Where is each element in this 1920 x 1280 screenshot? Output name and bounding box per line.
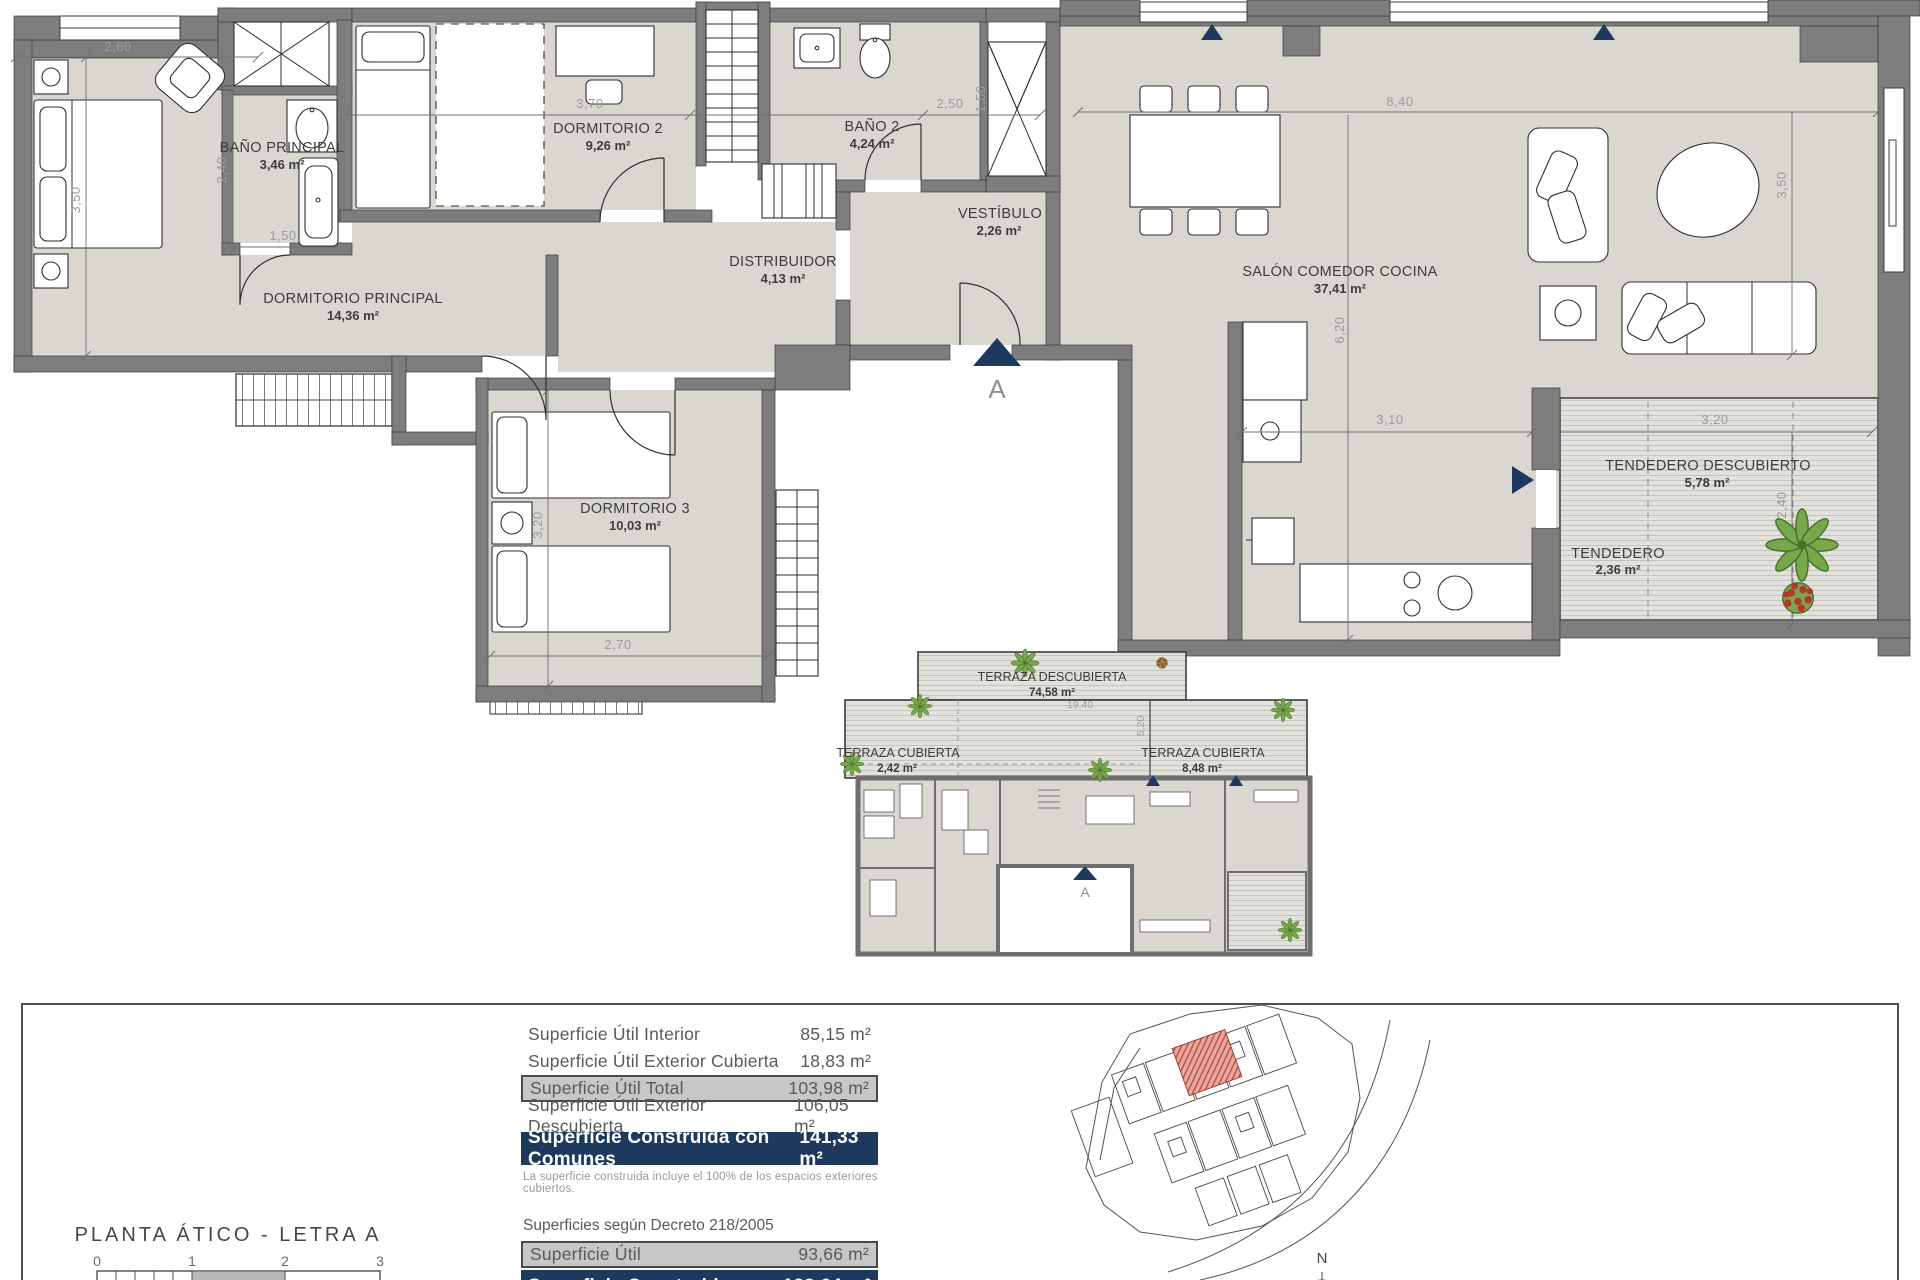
room-area: 10,03 m² [609,518,662,533]
plant-icon [1783,583,1814,614]
dim-label: 3,20 [1701,412,1728,427]
nightstand-icon [492,502,532,544]
dim-label: 3,20 [530,511,545,538]
north-compass-icon: N [1302,1250,1342,1280]
wardrobe-icon [234,22,329,86]
dining-table-icon [1130,86,1280,235]
single-bed-icon [356,26,430,208]
table-row-highlight-navy: Superficie Construida con Comunes 141,33… [521,1132,878,1165]
nightstand-icon [34,60,68,94]
room-area: 8,48 m² [1182,763,1222,775]
row-value: 85,15 m² [800,1024,871,1045]
site-map: N [1063,1005,1430,1280]
table-note: La superficie construida incluye el 100%… [521,1171,878,1195]
room-label: TERRAZA CUBIERTA [836,746,960,760]
room-label: TENDEDERO DESCUBIERTO [1605,458,1811,474]
plant-icon [1271,698,1295,722]
nightstand-icon [34,254,68,288]
plant-icon [1088,758,1112,782]
row-value: 133,64 m² [783,1276,871,1280]
single-bed-icon [492,412,670,498]
dim-label: 2,40 [1774,491,1789,518]
room-label: BAÑO PRINCIPAL [220,139,345,156]
tendedero-area [1560,398,1878,620]
room-label: DORMITORIO 2 [553,121,663,137]
room-area: 2,26 m² [977,223,1022,238]
table-row: Superficie Útil Exterior Descubierta 106… [521,1102,878,1129]
row-label: Superficie Construida [528,1276,730,1280]
dim-label: 3,10 [1376,412,1403,427]
room-label: BAÑO 2 [845,118,900,135]
scale-tick-label: 0 [93,1253,101,1269]
scale-bar: 0 1 2 3 [93,1253,384,1280]
dim-label: 1,50 [973,85,988,112]
plan-title: PLANTA ÁTICO - LETRA A [75,1223,382,1246]
decree-table-title: Superficies según Decreto 218/2005 [521,1217,878,1235]
stairs-icon [776,490,818,676]
dim-label: 6,20 [1332,316,1347,343]
scale-tick-label: 3 [376,1253,384,1269]
dim-label: 2,70 [604,637,631,652]
single-bed-icon [492,546,670,632]
compass-label: N [1317,1250,1328,1267]
row-label: Superficie Construida con Comunes [528,1127,799,1171]
row-value: 141,33 m² [799,1127,871,1171]
room-area: 4,24 m² [850,136,895,151]
dim-label: 5,20 [1135,716,1147,737]
double-bed-icon [34,100,162,248]
room-area: 2,36 m² [1596,562,1641,577]
table-row: Superficie Útil Exterior Cubierta 18,83 … [521,1048,878,1075]
room-label: DORMITORIO 3 [580,501,690,517]
row-label: Superficie Útil [530,1244,641,1265]
section-marker-letter: A [988,374,1006,404]
dim-label: 3,70 [576,96,603,111]
room-area: 74,58 m² [1029,687,1075,699]
sink-icon [794,28,840,68]
room-label: SALÓN COMEDOR COCINA [1242,263,1437,280]
area-tables: Superficie Útil Interior 85,15 m² Superf… [521,1021,878,1280]
plant-icon [1766,509,1838,581]
room-area: 4,13 m² [761,271,806,286]
row-label: Superficie Útil Interior [528,1024,700,1045]
highlighted-unit [1172,1030,1242,1096]
room-area: 3,46 m² [260,157,305,172]
room-area: 5,78 m² [1685,475,1730,490]
dim-label: 19,40 [1067,699,1093,711]
row-label: Superficie Útil Exterior Cubierta [528,1051,779,1072]
row-value: 93,66 m² [798,1244,869,1265]
table-row-highlight-navy: Superficie Construida 133,64 m² [521,1270,878,1280]
overview-plan: A TERRAZA DESCUBIERTA 74,58 m² 19,40 5,2… [836,649,1310,954]
dim-label: 2,40 [214,156,229,183]
dim-label: 1,50 [269,228,296,243]
room-area: 37,41 m² [1314,281,1367,296]
room-area: 14,36 m² [327,308,380,323]
row-value: 18,83 m² [800,1051,871,1072]
plant-icon [1278,918,1302,942]
room-area: 2,42 m² [877,763,917,775]
closet-icon [762,164,836,218]
room-label: VESTÍBULO [958,205,1042,222]
side-table-icon [1540,286,1596,340]
shower-icon [988,42,1046,176]
room-label: DORMITORIO PRINCIPAL [263,291,442,307]
sofa-icon [1622,282,1816,354]
plant-icon [1157,658,1168,669]
toilet-icon [860,24,890,78]
room-label: TERRAZA CUBIERTA [1141,746,1265,760]
footer-panel: PLANTA ÁTICO - LETRA A 0 1 2 3 [22,1004,1898,1280]
room-label: TENDEDERO [1571,546,1665,562]
scale-tick-label: 1 [188,1253,196,1269]
floor-plan-page: 2,60 3,50 2,40 1,50 3,70 2,50 1,50 8,40 … [0,0,1920,1280]
section-marker-letter: A [1080,884,1090,900]
plant-icon [908,694,932,718]
dim-label: 3,50 [1774,171,1789,198]
scale-tick-label: 2 [281,1253,289,1269]
room-label: DISTRIBUIDOR [729,254,837,270]
dim-label: 2,50 [936,96,963,111]
room-area: 9,26 m² [586,138,631,153]
room-label: TERRAZA DESCUBIERTA [978,670,1128,684]
armchair-icon [1528,128,1608,262]
stairs-icon [706,10,758,162]
table-row-highlight-gray: Superficie Útil 93,66 m² [521,1241,878,1268]
dim-label: 3,50 [68,186,83,213]
table-row: Superficie Útil Interior 85,15 m² [521,1021,878,1048]
bathtub-icon [299,158,338,246]
dim-label: 2,60 [104,39,131,54]
floor-plan-drawing: 2,60 3,50 2,40 1,50 3,70 2,50 1,50 8,40 … [0,0,1920,1280]
dim-label: 8,40 [1386,94,1413,109]
